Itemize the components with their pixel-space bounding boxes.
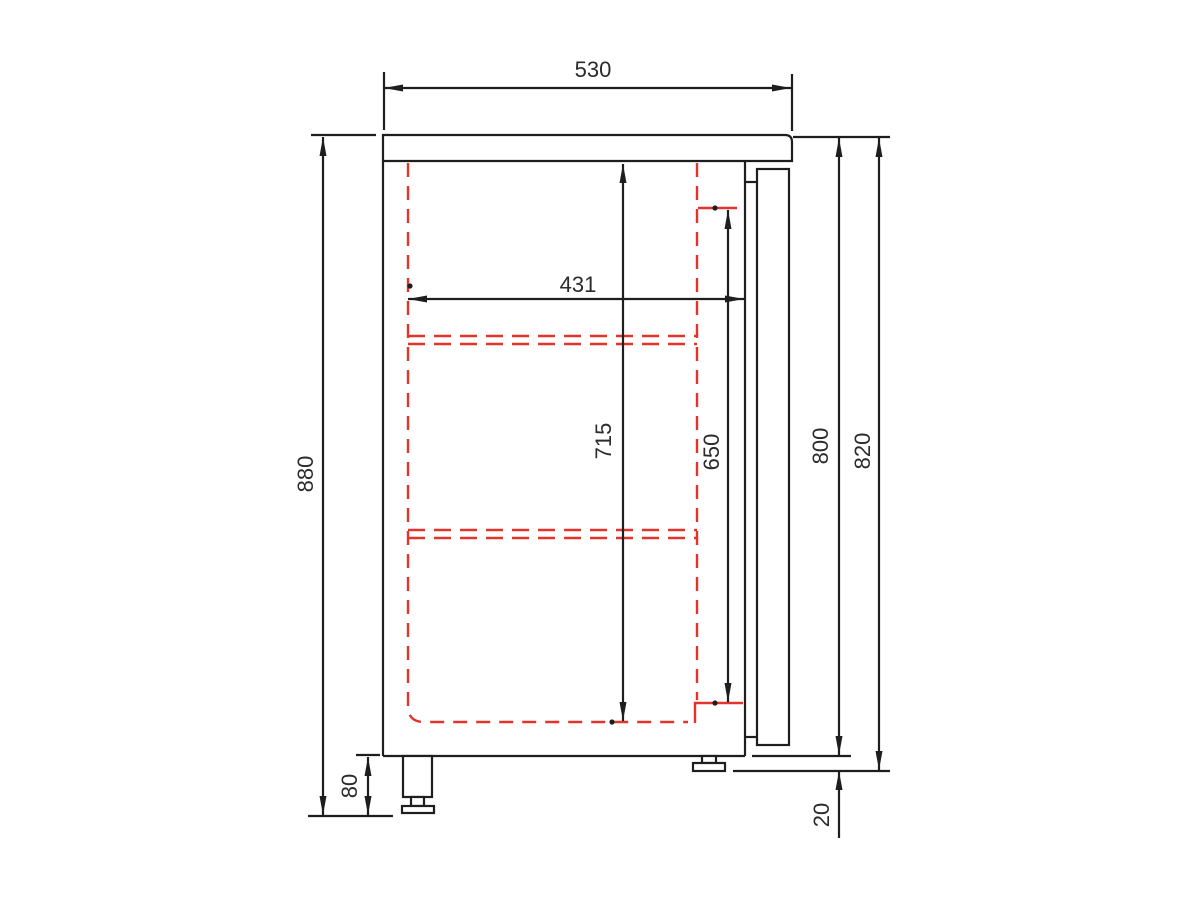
node-dot [407,283,412,288]
right-foot [693,756,725,771]
dimension-label-880: 880 [293,456,318,493]
shelf-upper [408,336,697,344]
liner-bottom-step-line [695,703,743,723]
dimension-label-80: 80 [337,774,362,798]
left-foot-body [403,756,432,797]
dimension-interior-height-715: 715 [591,164,623,721]
drawing-canvas: 530 431 880 80 715 650 800 820 20 [0,0,1200,900]
dimension-overall-height-880: 880 [293,135,393,816]
shelf-lower [408,530,697,538]
dimension-inner-depth-431: 431 [408,272,744,299]
dimension-top-depth-530: 530 [384,57,792,131]
dimension-label-800: 800 [808,428,833,465]
dimension-label-715: 715 [591,423,616,460]
dimension-label-820: 820 [850,433,875,470]
cabinet-body [383,135,792,813]
dimension-label-530: 530 [575,57,612,82]
dimension-door-opening-650: 650 [699,210,728,702]
dimension-foot-height-80: 80 [337,755,380,815]
node-dot [609,719,614,724]
dimension-label-20: 20 [809,803,834,827]
dimension-label-431: 431 [560,272,597,297]
node-dot [712,700,717,705]
dimension-foot-min-20: 20 [809,771,839,838]
left-foot-stem [411,797,424,806]
left-foot-pad [402,806,434,813]
left-foot [402,756,434,813]
hidden-interior-liner [408,163,743,723]
liner-left-bottom-line [408,163,688,722]
right-foot-pad [693,763,725,771]
technical-drawing: 530 431 880 80 715 650 800 820 20 [0,0,1200,900]
worktop [383,135,792,161]
node-dot [712,205,717,210]
door-panel [757,169,789,745]
dimension-label-650: 650 [699,434,724,471]
